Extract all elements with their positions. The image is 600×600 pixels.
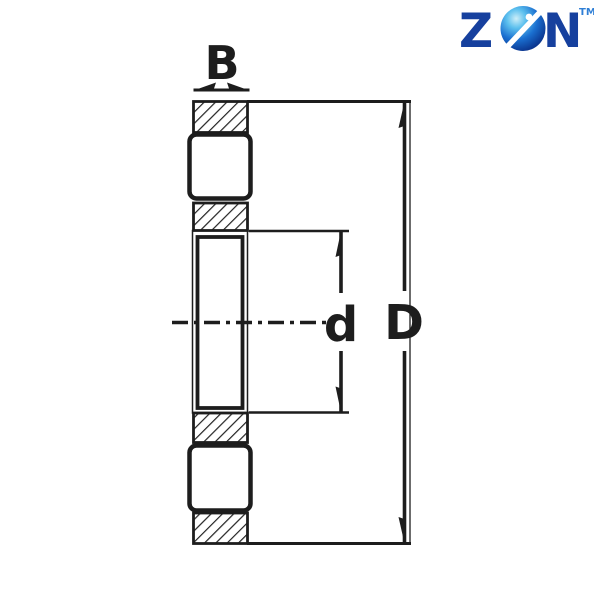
dimension-B-width: B	[194, 36, 250, 91]
dimension-d-bore: d	[324, 231, 358, 413]
zen-logo: Z N TM	[458, 3, 594, 55]
logo-letter-n: N	[543, 4, 582, 55]
inner-ring-section-top	[194, 203, 248, 231]
arrowhead-down-icon	[399, 517, 406, 544]
roller-top	[190, 135, 251, 199]
dim-label-D: D	[384, 295, 424, 351]
bearing-cross-section-drawing: B d D	[0, 0, 600, 600]
logo-trademark: TM	[579, 7, 594, 18]
dim-label-d: d	[324, 297, 358, 353]
dim-label-B: B	[204, 36, 239, 90]
inner-ring-section-bottom	[194, 413, 248, 443]
outer-ring-section-top	[194, 102, 248, 133]
roller-bottom	[190, 446, 251, 511]
outer-ring-section-bottom	[194, 513, 248, 544]
bearing-drawing-page: B d D Z	[0, 0, 600, 600]
logo-letter-z: Z	[459, 4, 493, 55]
dimension-D-outer: D	[384, 102, 424, 544]
logo-globe-icon	[501, 6, 546, 51]
arrowhead-up-icon	[399, 102, 406, 129]
